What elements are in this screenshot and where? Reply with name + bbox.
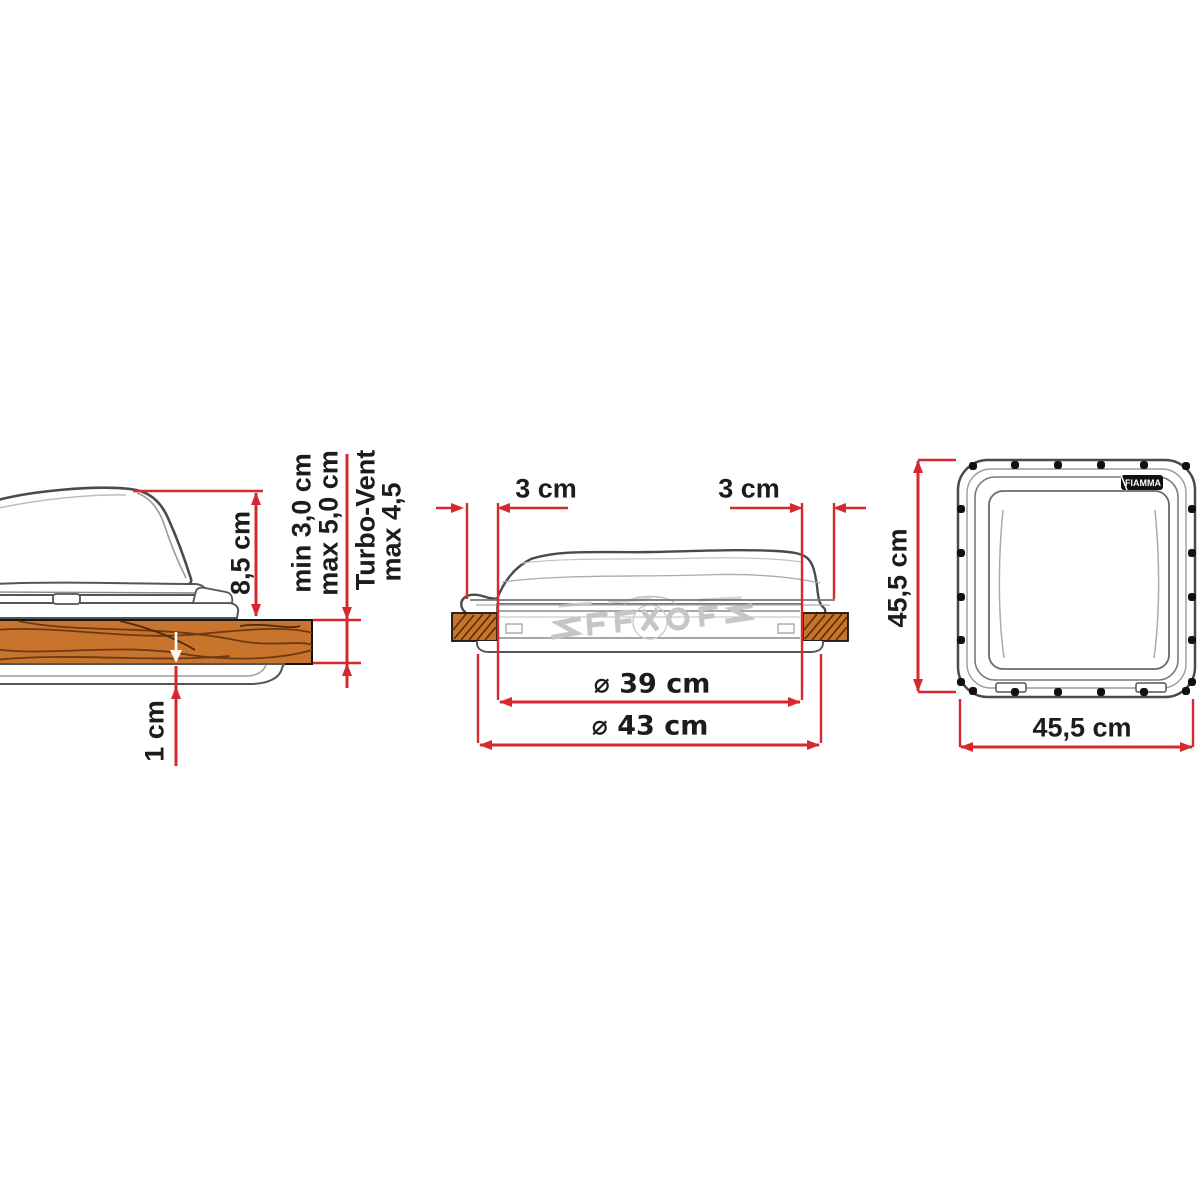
fiamma-logo: FIAMMA [1121, 475, 1163, 490]
roof-wood-block-right [803, 613, 848, 641]
top-view-height-label: 45,5 cm [885, 528, 912, 627]
top-view: FIAMMA [957, 460, 1196, 697]
turbo-vent-label: Turbo-Vent [353, 450, 380, 590]
roof-wood-block-left [452, 613, 497, 641]
outer-diameter-label: ⌀ 43 cm [592, 713, 709, 740]
inner-frame-gap-label: 1 cm [142, 700, 169, 762]
roof-thickness-max-label: max 5,0 cm [316, 450, 343, 596]
line-art: FIAMMA [0, 0, 1200, 1200]
overlap-right-label: 3 cm [718, 476, 780, 503]
overlap-left-label: 3 cm [515, 476, 577, 503]
opening-diameter-label: ⌀ 39 cm [594, 671, 711, 698]
side-section-view [0, 488, 312, 684]
turbo-vent-max-label: max 4,5 [379, 482, 406, 581]
flange-tab [53, 594, 80, 604]
lid-height-label: 8,5 cm [228, 511, 255, 595]
front-section-view [452, 550, 848, 652]
top-view-width-label: 45,5 cm [1032, 715, 1131, 742]
front-garnish-tray [477, 641, 823, 652]
roof-thickness-min-label: min 3,0 cm [289, 453, 316, 593]
vent-lid-interior-line [502, 574, 820, 583]
latch-tab-left [996, 683, 1026, 692]
frame-opening [989, 491, 1169, 669]
mounting-flange [0, 603, 238, 618]
interior-garnish [0, 664, 284, 684]
diagram-canvas: FIAMMA 8,5 cm min 3,0 cm max 5,0 cm Turb… [0, 0, 1200, 1200]
fiamma-logo-text: FIAMMA [1125, 478, 1161, 488]
